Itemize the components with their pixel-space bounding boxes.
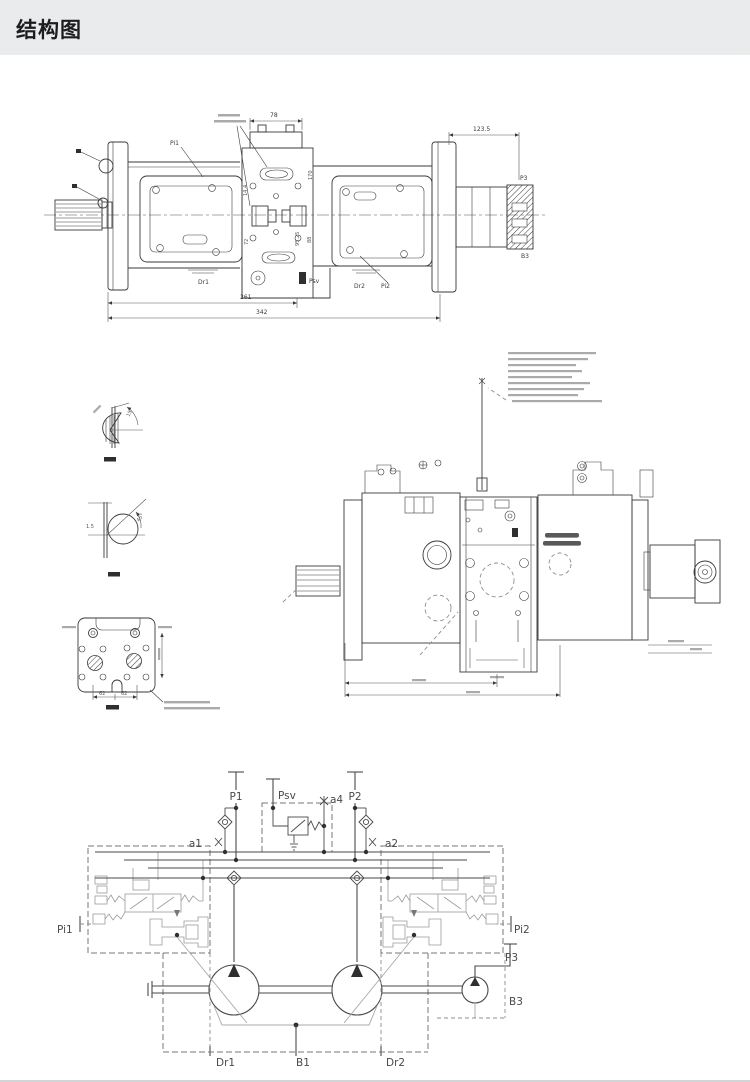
cross-lines <box>95 852 490 878</box>
b1-suction <box>294 1023 299 1056</box>
label-dr1-sch: Dr1 <box>216 1057 235 1069</box>
section-header: 结构图 <box>0 0 750 55</box>
detail-bottom-dim: 1.5 <box>86 524 94 530</box>
schematic-left-half <box>80 772 296 1056</box>
detail-view-port-angle-top: 15° <box>93 403 143 462</box>
callout-leaders <box>72 149 113 208</box>
label-pi1-sch: Pi1 <box>57 924 73 936</box>
rot-dim-3: 95.25 <box>295 232 301 246</box>
label-psv: Psv <box>309 278 320 285</box>
detail-top-angle: 15° <box>126 407 135 418</box>
top-view-right-body <box>538 462 653 641</box>
label-a4: a4 <box>330 794 343 806</box>
top-view-shaft <box>283 566 340 602</box>
label-dr2: Dr2 <box>354 283 365 290</box>
dim-78: 78 <box>270 112 278 119</box>
dim-123-5: 123.5 <box>473 126 490 133</box>
label-pi2: Pi2 <box>381 283 390 290</box>
structure-diagram-page: 结构图 <box>0 0 750 1082</box>
dim-342: 342 <box>256 309 268 316</box>
structure-drawings-svg: 78 123.5 261 342 14.4 72 95.25 88 170 <box>0 55 750 1081</box>
detail-view-port-angle-bottom: 45° 1.5 <box>86 499 146 577</box>
manufacturer-stamp <box>543 533 581 575</box>
label-b3-side: B3 <box>521 253 529 260</box>
servo-relief-valve <box>262 779 332 852</box>
drain-rails <box>163 953 505 1052</box>
label-dr1: Dr1 <box>198 279 209 286</box>
pump2-housing <box>313 166 432 273</box>
detail-bottom-caption-bar <box>108 572 120 577</box>
center-valve-block <box>242 125 330 298</box>
detail-top-caption-bar <box>104 457 116 462</box>
flange-dim-right: 62 <box>121 691 127 697</box>
label-dr2-sch: Dr2 <box>386 1057 405 1069</box>
top-view-drawing <box>283 352 720 697</box>
hydraulic-schematic: P1 Psv a4 P2 a1 a2 Pi1 Pi2 P3 B3 Dr1 B1 … <box>57 772 530 1069</box>
label-a2: a2 <box>385 838 398 850</box>
schematic-labels: P1 Psv a4 P2 a1 a2 Pi1 Pi2 P3 B3 Dr1 B1 … <box>57 790 530 1069</box>
section-title: 结构图 <box>0 0 750 44</box>
label-pi1: Pi1 <box>170 140 179 147</box>
schematic-right-half <box>295 772 511 1056</box>
through-drive-section <box>432 142 533 292</box>
regulator-group <box>93 852 208 947</box>
label-psv-sch: Psv <box>278 790 296 802</box>
side-view-drawing: 78 123.5 261 342 14.4 72 95.25 88 170 <box>44 112 546 322</box>
flange-face-view: 62 62 <box>62 618 220 710</box>
label-b1-sch: B1 <box>296 1057 310 1069</box>
label-p1: P1 <box>229 791 242 803</box>
label-p2: P2 <box>348 791 361 803</box>
top-view-center-block <box>460 497 537 678</box>
top-view-left-body <box>344 460 460 660</box>
flange-caption-bar <box>106 705 119 710</box>
psv-port-plug <box>299 272 306 284</box>
pump1-housing <box>128 162 242 273</box>
dim-261: 261 <box>240 294 252 301</box>
servo-pin <box>477 378 487 491</box>
label-p3-side: P3 <box>520 175 528 182</box>
top-view-dimensions <box>345 640 712 697</box>
technical-notes-block <box>488 352 602 402</box>
pump-shaft <box>148 981 462 998</box>
flange-dim-left: 62 <box>99 691 105 697</box>
rot-dim-4: 88 <box>307 237 313 243</box>
rot-dim-2: 72 <box>244 239 250 245</box>
front-flange <box>108 142 128 290</box>
label-a1: a1 <box>189 838 202 850</box>
label-p3-sch: P3 <box>505 952 518 964</box>
label-pi2-sch: Pi2 <box>514 924 530 936</box>
drawing-canvas: 78 123.5 261 342 14.4 72 95.25 88 170 <box>0 55 750 1081</box>
bolt-note <box>214 114 267 206</box>
label-b3-sch: B3 <box>509 996 523 1008</box>
rot-dim-5: 170 <box>308 170 314 180</box>
top-view-pilot-pump <box>644 540 720 603</box>
